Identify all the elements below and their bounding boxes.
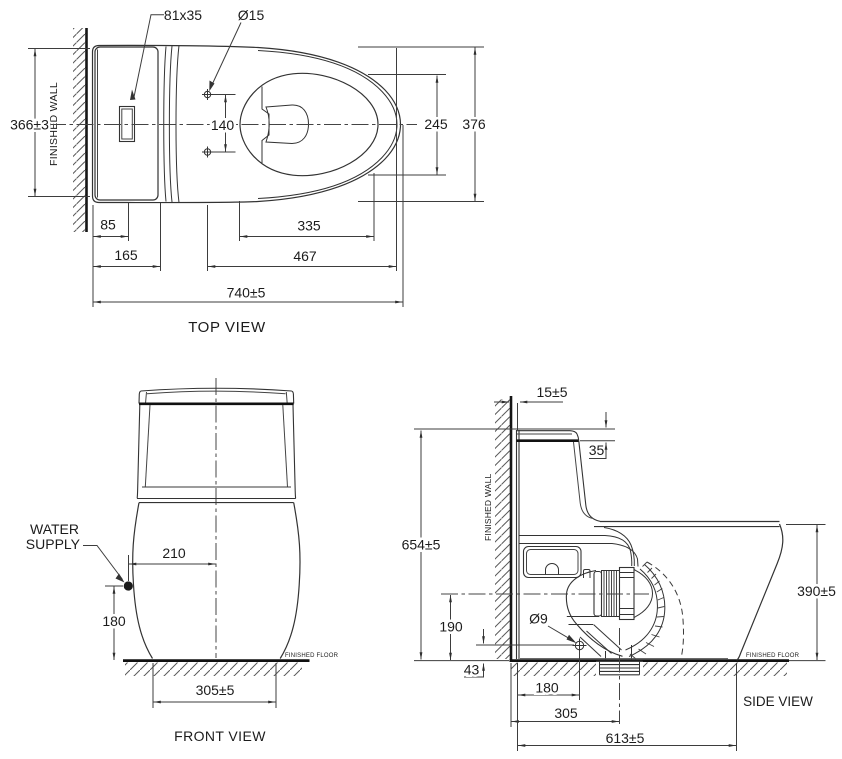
svg-text:180: 180 <box>535 680 559 696</box>
svg-text:FINISHED WALL: FINISHED WALL <box>483 473 493 541</box>
svg-text:FINISHED WALL: FINISHED WALL <box>48 82 60 166</box>
svg-text:81x35: 81x35 <box>164 7 202 23</box>
svg-text:FINISHED FLOOR: FINISHED FLOOR <box>746 653 800 659</box>
svg-text:335: 335 <box>297 218 321 234</box>
svg-text:180: 180 <box>102 613 126 629</box>
svg-text:FINISHED FLOOR: FINISHED FLOOR <box>285 653 339 659</box>
svg-text:SIDE VIEW: SIDE VIEW <box>743 694 813 709</box>
svg-text:740±5: 740±5 <box>227 285 266 301</box>
svg-text:390±5: 390±5 <box>797 583 836 599</box>
svg-text:190: 190 <box>439 619 463 635</box>
svg-text:TOP VIEW: TOP VIEW <box>188 319 266 336</box>
svg-text:FRONT VIEW: FRONT VIEW <box>174 728 266 744</box>
svg-text:245: 245 <box>424 116 448 132</box>
svg-text:613±5: 613±5 <box>606 730 645 746</box>
svg-text:305: 305 <box>554 705 578 721</box>
svg-text:WATER: WATER <box>30 521 79 537</box>
svg-text:210: 210 <box>162 545 186 561</box>
svg-text:654±5: 654±5 <box>402 537 441 553</box>
svg-text:165: 165 <box>114 247 138 263</box>
svg-text:SUPPLY: SUPPLY <box>26 536 81 552</box>
svg-text:366±3: 366±3 <box>10 117 49 133</box>
svg-text:35: 35 <box>589 442 605 458</box>
svg-text:467: 467 <box>293 248 317 264</box>
svg-text:Ø9: Ø9 <box>529 611 548 627</box>
svg-text:85: 85 <box>100 217 116 233</box>
svg-text:305±5: 305±5 <box>196 682 235 698</box>
svg-text:43: 43 <box>464 662 480 678</box>
svg-text:140: 140 <box>211 117 235 133</box>
svg-text:15±5: 15±5 <box>536 384 567 400</box>
svg-text:376: 376 <box>462 116 486 132</box>
svg-text:Ø15: Ø15 <box>238 7 265 23</box>
